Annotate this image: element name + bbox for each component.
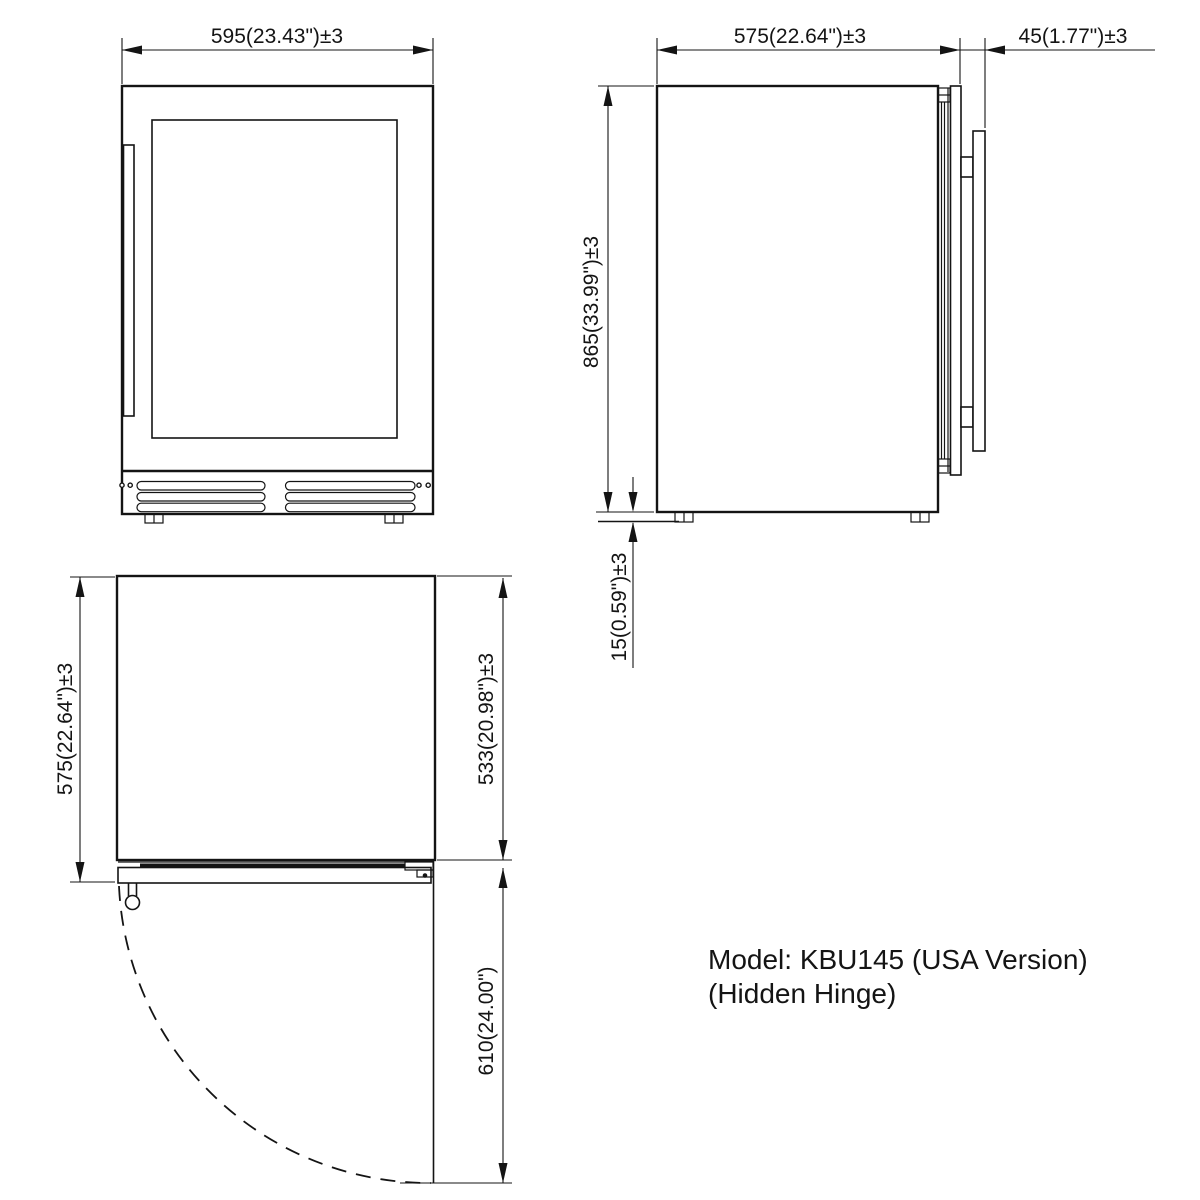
arrowhead-down — [499, 1163, 508, 1183]
arrowhead-left — [122, 46, 142, 55]
arrowhead-up — [76, 577, 85, 597]
front-view: 595(23.43")±3 — [120, 25, 433, 523]
side-door-panel — [939, 86, 962, 475]
side-foot-right — [911, 512, 929, 522]
side-height-dimension: 865(33.99")±3 — [580, 86, 654, 512]
door-front-face — [951, 86, 962, 475]
arrowhead-right — [940, 46, 960, 55]
side-foot-left — [675, 512, 693, 522]
top-door-panel — [118, 862, 433, 910]
vent-screw — [128, 483, 132, 487]
top-view: 575(22.64")±3 533(20.98")±3 610(24.00") — [54, 576, 512, 1183]
door-swing-arc — [119, 886, 431, 1183]
handle-bracket — [961, 407, 973, 427]
arrowhead-up — [604, 86, 613, 106]
arrowhead-down — [604, 492, 613, 512]
arrowhead-down — [629, 492, 638, 512]
top-depth-dimension: 575(22.64")±3 — [54, 577, 115, 882]
arrowhead-up — [499, 578, 508, 598]
side-cabinet-outline — [657, 86, 938, 512]
arrowhead-up — [499, 868, 508, 888]
arrowhead-right — [413, 46, 433, 55]
model-label-line1: Model: KBU145 (USA Version) — [708, 944, 1088, 975]
dimension-drawing-page: 595(23.43")±3 — [0, 0, 1200, 1200]
door-swing-label: 610(24.00") — [475, 966, 498, 1075]
arrowhead-up — [629, 522, 638, 542]
vent-screw — [417, 483, 421, 487]
arrowhead-left — [657, 46, 677, 55]
front-door-handle — [124, 145, 135, 416]
door-swing-dimension: 610(24.00") — [400, 868, 512, 1183]
arrowhead-left — [985, 46, 1005, 55]
arrowhead-down — [499, 840, 508, 860]
top-cabinet-outline — [117, 576, 435, 860]
front-width-label: 595(23.43")±3 — [211, 25, 343, 48]
technical-drawing-canvas: 595(23.43")±3 — [0, 0, 1200, 1200]
top-depth-label: 575(22.64")±3 — [54, 663, 77, 795]
model-label-line2: (Hidden Hinge) — [708, 978, 896, 1009]
side-door-thickness-label: 45(1.77")±3 — [1019, 25, 1128, 48]
top-body-depth-dimension: 533(20.98")±3 — [437, 576, 512, 860]
model-label: Model: KBU145 (USA Version) (Hidden Hing… — [708, 944, 1088, 1009]
top-body-depth-label: 533(20.98")±3 — [475, 653, 498, 785]
front-foot-right — [385, 514, 403, 523]
front-door-glass — [152, 120, 397, 438]
vent-screw — [120, 483, 124, 487]
handle-knob — [126, 896, 140, 910]
top-door-handle — [126, 883, 140, 910]
side-depth-label: 575(22.64")±3 — [734, 25, 866, 48]
handle-bar — [973, 131, 985, 451]
hinge-pivot — [423, 873, 428, 878]
side-leg-height-label: 15(0.59")±3 — [608, 553, 631, 662]
side-height-label: 865(33.99")±3 — [580, 236, 603, 368]
front-width-dimension: 595(23.43")±3 — [122, 25, 433, 84]
side-door-handle — [961, 131, 985, 451]
door-frame — [118, 868, 431, 884]
handle-bracket — [961, 157, 973, 177]
side-leg-height-dimension: 15(0.59")±3 — [608, 477, 638, 668]
vent-screw — [426, 483, 430, 487]
arrowhead-down — [76, 862, 85, 882]
side-door-thickness-dimension: 45(1.77")±3 — [985, 25, 1127, 128]
side-view: 575(22.64")±3 45(1.77")±3 — [580, 25, 1155, 668]
front-foot-left — [145, 514, 163, 523]
